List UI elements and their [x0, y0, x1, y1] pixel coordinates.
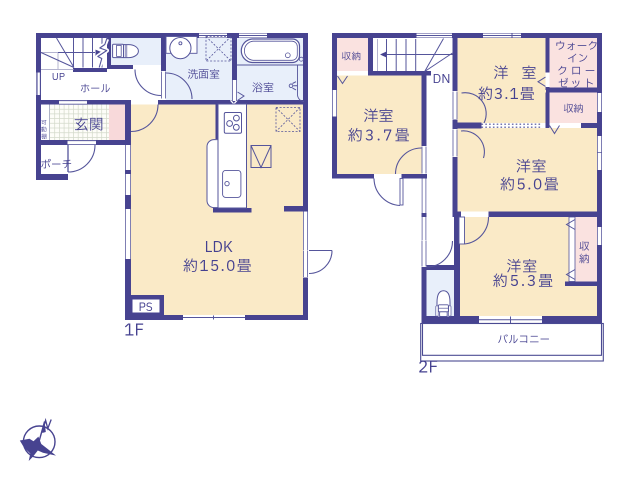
- svg-text:納: 納: [579, 252, 590, 268]
- svg-text:約5.3畳: 約5.3畳: [493, 270, 555, 293]
- svg-text:ホール: ホール: [80, 82, 111, 97]
- svg-text:約3.1畳: 約3.1畳: [478, 83, 536, 106]
- svg-text:ゼット: ゼット: [558, 76, 596, 92]
- svg-text:洋室: 洋室: [494, 62, 550, 85]
- svg-text:約5.0畳: 約5.0畳: [500, 174, 560, 197]
- svg-text:DN: DN: [433, 70, 451, 89]
- svg-text:2F: 2F: [418, 357, 438, 381]
- svg-text:約3.7畳: 約3.7畳: [348, 124, 412, 147]
- svg-text:約15.0畳: 約15.0畳: [183, 255, 253, 278]
- svg-text:収納: 収納: [564, 102, 584, 117]
- svg-text:洗面室: 洗面室: [188, 67, 221, 83]
- svg-text:棚: 棚: [41, 133, 47, 142]
- svg-text:収納: 収納: [342, 50, 362, 64]
- svg-text:浴室: 浴室: [252, 79, 274, 96]
- svg-text:PS: PS: [139, 300, 153, 317]
- svg-text:バルコニー: バルコニー: [498, 332, 551, 348]
- svg-text:玄関: 玄関: [74, 115, 104, 136]
- svg-text:ポーチ: ポーチ: [41, 157, 73, 173]
- svg-text:1F: 1F: [124, 320, 144, 344]
- svg-text:UP: UP: [52, 71, 65, 85]
